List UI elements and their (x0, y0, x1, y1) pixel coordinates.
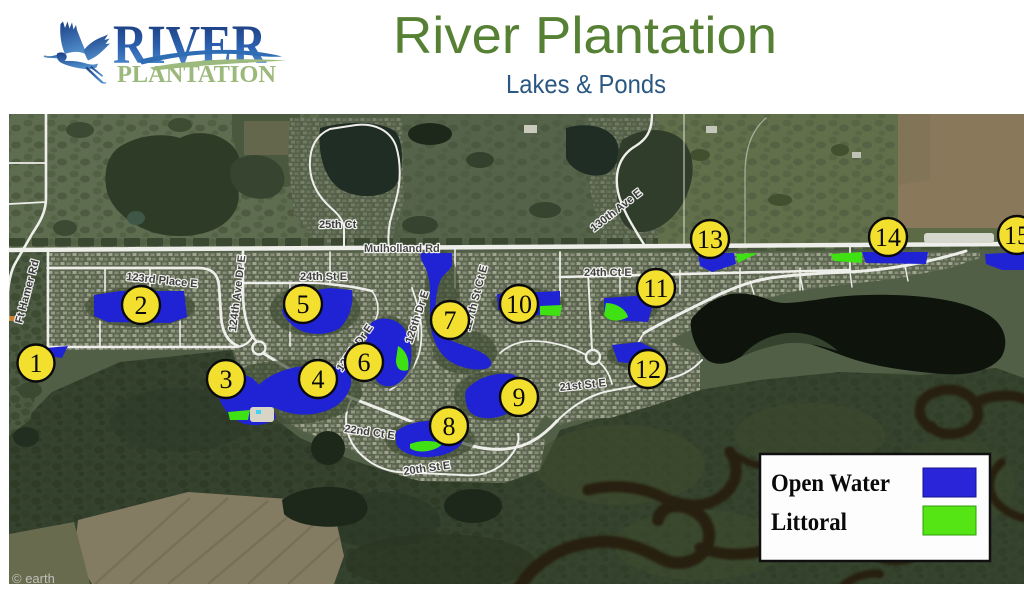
svg-text:Littoral: Littoral (771, 509, 847, 536)
svg-text:5: 5 (297, 290, 310, 319)
svg-text:Open Water: Open Water (771, 470, 890, 497)
svg-text:1: 1 (30, 349, 43, 378)
svg-text:25th Ct: 25th Ct (319, 219, 357, 231)
svg-text:24th Ct E: 24th Ct E (584, 267, 632, 279)
svg-text:River Plantation: River Plantation (393, 7, 777, 65)
svg-text:3: 3 (220, 365, 233, 394)
svg-text:7: 7 (444, 306, 457, 335)
svg-text:11: 11 (643, 274, 668, 303)
svg-text:9: 9 (513, 383, 526, 412)
svg-text:Lakes & Ponds: Lakes & Ponds (506, 69, 666, 99)
svg-text:4: 4 (312, 365, 325, 394)
svg-text:6: 6 (358, 348, 371, 377)
svg-text:8: 8 (443, 412, 456, 441)
svg-text:15: 15 (1004, 221, 1024, 250)
svg-text:Mulholland Rd: Mulholland Rd (364, 243, 440, 255)
svg-text:PLANTATION: PLANTATION (117, 62, 277, 88)
svg-text:13: 13 (697, 225, 723, 254)
svg-text:24th St E: 24th St E (300, 271, 347, 283)
svg-text:10: 10 (506, 290, 532, 319)
svg-text:2: 2 (135, 291, 148, 320)
svg-text:12: 12 (635, 355, 661, 384)
svg-text:© earth: © earth (12, 571, 55, 586)
svg-text:14: 14 (875, 223, 901, 252)
